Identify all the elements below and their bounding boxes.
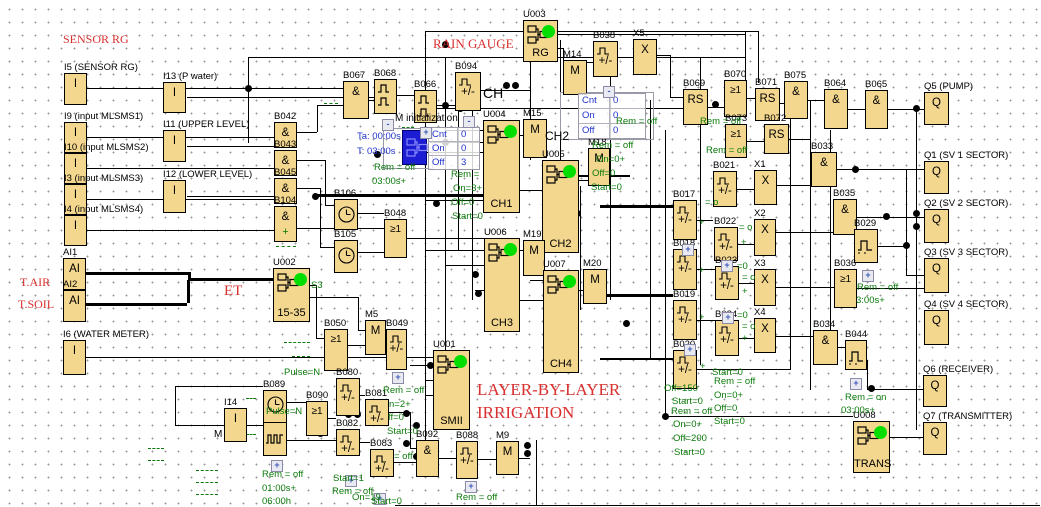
wire [530, 280, 543, 281]
block-B017[interactable]: B017+/- [673, 200, 697, 240]
wire [297, 188, 320, 189]
wire [328, 418, 336, 419]
expand-badge[interactable]: + [392, 372, 404, 384]
green-parameter-annotation: 01:00s+ [262, 483, 296, 494]
block-X3[interactable]: X3X [754, 269, 776, 306]
block-label: U004 [483, 109, 506, 120]
flag-symbol: M [366, 325, 385, 337]
junction-dot [403, 410, 410, 417]
flag-symbol: M [584, 274, 606, 286]
red-annotation: T.AIR [20, 275, 50, 290]
expand-badge[interactable]: + [684, 344, 696, 356]
updown-counter-symbol: +/- [371, 463, 393, 475]
junction-dot [442, 102, 449, 109]
block-U004[interactable]: U004CH1 [483, 120, 520, 213]
junction-dot [662, 413, 669, 420]
green-parameter-annotation: Pulse=N [266, 406, 302, 417]
junction-dot [868, 385, 875, 392]
block-U006[interactable]: U006CH3 [484, 238, 520, 332]
updown-counter-symbol: +/- [715, 241, 737, 253]
junction-dot [524, 442, 531, 449]
junction-dot [913, 223, 920, 230]
green-parameter-annotation: =0 [737, 310, 748, 321]
block-B034[interactable]: B034& [813, 330, 838, 365]
block-I11[interactable]: I11 (UPPER LEVEL)I [163, 130, 186, 162]
green-parameter-annotation: Off=200 [673, 433, 707, 444]
block-U008[interactable]: U008TRANS [853, 421, 890, 473]
collapse-badge[interactable]: - [463, 116, 475, 128]
block-label: B034 [813, 319, 835, 330]
updown-counter-symbol: +/- [674, 214, 696, 226]
block-label: B049 [386, 318, 408, 329]
block-B072[interactable]: B072RS [764, 124, 789, 154]
wire [394, 462, 416, 463]
wire [580, 186, 581, 310]
collapse-badge[interactable]: - [603, 86, 615, 98]
block-label: M9 [496, 430, 509, 441]
green-parameter-annotation: + [742, 286, 748, 297]
block-X4[interactable]: X4X [754, 318, 776, 353]
open-connector-dash [246, 434, 256, 435]
wire [867, 389, 923, 390]
green-parameter-annotation: On=3+ [453, 183, 482, 194]
updown-counter-symbol: +/- [366, 413, 388, 425]
analog-input-symbol: AI [64, 263, 85, 275]
block-B090[interactable]: B090≥1 [306, 401, 328, 436]
udf-name: RG [524, 47, 557, 59]
rs-latch-symbol: RS [684, 94, 707, 106]
block-label: M20 [583, 258, 601, 269]
block-label: AI1 [63, 247, 77, 258]
wire [358, 297, 359, 330]
wire [325, 205, 334, 206]
green-parameter-annotation: 3:00s+ [856, 295, 885, 306]
wire [558, 34, 745, 35]
block-M9[interactable]: M9M [496, 441, 519, 475]
wire [916, 108, 917, 430]
block-label: B083 [370, 438, 392, 449]
block-B080[interactable]: B080+/- [336, 378, 360, 416]
input-symbol: I [65, 78, 86, 90]
block-label: B067 [343, 70, 365, 81]
wire [758, 31, 759, 83]
green-parameter-annotation: Rem = off [616, 116, 657, 127]
block-B067[interactable]: B067& [343, 81, 369, 119]
udf-name: 15-35 [274, 307, 309, 319]
block-label: B036 [834, 258, 856, 269]
param-key: On [429, 142, 457, 155]
udf-name: CH1 [484, 198, 519, 210]
junction-dot [913, 210, 920, 217]
green-parameter-annotation: Off=0 [592, 168, 615, 179]
or-gate-symbol: ≥1 [385, 224, 406, 235]
block-label: M15 [523, 108, 541, 119]
block-label: I14 [224, 397, 237, 408]
green-parameter-annotation: On=0+ [714, 390, 743, 401]
green-parameter-annotation: = o [742, 321, 755, 332]
or-gate-symbol: ≥1 [726, 129, 746, 140]
updown-counter-symbol: +/- [674, 263, 696, 275]
block-X2[interactable]: X2X [754, 219, 776, 256]
block-B092[interactable]: B092& [416, 440, 439, 477]
block-B064[interactable]: B064& [824, 89, 848, 129]
expand-badge[interactable]: + [682, 244, 694, 256]
block-label: B043 [274, 139, 296, 150]
and-gate-symbol: & [812, 157, 836, 169]
wire [838, 347, 845, 348]
wire [187, 280, 190, 303]
green-run-indicator [874, 426, 887, 439]
block-I4[interactable]: I4 (input MLSMS4)I [64, 215, 87, 246]
green-parameter-annotation: + [699, 217, 705, 228]
block-B083[interactable]: B083+/- [370, 449, 394, 477]
green-parameter-annotation: + [700, 361, 706, 372]
green-parameter-annotation: = o [739, 222, 752, 233]
wire [86, 230, 274, 231]
green-parameter-annotation: Rem = off [456, 492, 497, 503]
or-gate-symbol: ≥1 [835, 274, 856, 285]
block-X5[interactable]: X5X [633, 39, 657, 75]
block-B070[interactable]: B070≥1 [724, 80, 747, 117]
flag-symbol: M [524, 124, 546, 136]
wire [445, 57, 446, 350]
collapse-badge[interactable]: - [382, 119, 394, 131]
block-label: Q4 (SV 4 SECTOR) [924, 299, 1008, 310]
wire [600, 358, 673, 360]
and-gate-symbol: & [275, 155, 296, 167]
green-parameter-annotation: Rem = off [714, 376, 755, 387]
green-parameter-annotation: S3 [311, 280, 323, 291]
junction-dot [503, 82, 510, 89]
green-parameter-annotation: = o [705, 197, 718, 208]
pulse-generator-icon [265, 431, 285, 451]
wire [739, 283, 754, 284]
wire [657, 55, 670, 56]
block-I14[interactable]: I14I [224, 408, 247, 442]
expand-badge[interactable]: + [420, 127, 432, 139]
block-label: Q2 (SV 2 SECTOR) [924, 198, 1008, 209]
block-label: B090 [306, 390, 328, 401]
flag-symbol: M [497, 446, 518, 458]
wiping-relay-icon [856, 235, 876, 260]
param-key: Cnt [429, 128, 457, 141]
block-label: B065 [865, 79, 887, 90]
block-Q2[interactable]: Q2 (SV 2 SECTOR)Q [924, 209, 949, 243]
block-Q4[interactable]: Q4 (SV 4 SECTOR)Q [924, 310, 949, 345]
wire [397, 95, 414, 96]
input-symbol: I [65, 127, 86, 139]
junction-dot [403, 440, 410, 447]
green-parameter-annotation: Start=0 [714, 416, 745, 427]
wire [86, 303, 187, 306]
wire [358, 330, 365, 331]
red-annotation: SENSOR RG [63, 32, 129, 47]
block-Q5[interactable]: Q5 (PUMP)Q [924, 92, 949, 125]
red-annotation: ET [224, 283, 242, 300]
selected-block-icon [405, 137, 429, 164]
block-B104[interactable]: B104&+ [274, 206, 297, 242]
open-connector-dash [196, 494, 218, 495]
wire [906, 275, 924, 276]
wire [747, 141, 764, 142]
block-B081[interactable]: B081+/- [365, 399, 389, 426]
wire [86, 272, 188, 275]
updown-counter-symbol: +/- [674, 314, 696, 326]
green-parameter-annotation: Start=1 [333, 473, 364, 484]
wire [310, 297, 358, 298]
block-divider [264, 422, 286, 423]
param-row: On0 [429, 141, 479, 155]
block-B019[interactable]: B019+/- [673, 300, 697, 340]
expand-badge[interactable]: + [722, 312, 734, 324]
block-label: B089 [263, 379, 285, 390]
block-label: Q1 (SV 1 SECTOR) [924, 150, 1008, 161]
green-parameter-annotation: Start=0 [387, 426, 418, 437]
timer-clock-icon [337, 246, 356, 270]
green-parameter-annotation: ff=0 [388, 412, 404, 423]
block-B089[interactable]: B089 [263, 390, 287, 456]
block-U005[interactable]: U005CH2 [542, 160, 579, 253]
updown-counter-symbol: +/- [457, 455, 477, 467]
block-label: B022 [714, 216, 736, 227]
black-annotation: CH [483, 85, 503, 101]
block-label: AI2 [63, 279, 77, 290]
wire [520, 190, 542, 191]
block-label: Q3 (SV 3 SECTOR) [924, 247, 1008, 258]
wire [618, 57, 633, 58]
or-gate-symbol: ≥1 [325, 334, 347, 345]
updown-counter-symbol: +/- [337, 443, 359, 455]
block-Q3[interactable]: Q3 (SV 3 SECTOR)Q [924, 258, 949, 293]
block-label: B075 [784, 70, 806, 81]
block-B106[interactable]: B106 [334, 199, 358, 230]
junction-dot [913, 105, 920, 112]
block-B065[interactable]: B065& [865, 90, 888, 129]
block-B082[interactable]: B082+/- [336, 429, 360, 456]
and-gate-symbol: & [275, 127, 296, 139]
x-connector-symbol: X [755, 274, 775, 286]
block-label: U002 [273, 257, 296, 268]
wire [360, 442, 370, 443]
block-B068[interactable]: B068 [374, 79, 397, 114]
green-parameter-annotation: Off=150 [664, 383, 698, 394]
wire [520, 300, 543, 301]
block-B088[interactable]: B088+/- [456, 441, 478, 479]
block-label: B069 [683, 78, 705, 89]
block-label: B042 [274, 111, 296, 122]
green-parameter-annotation: On=0+ [673, 419, 702, 430]
green-parameter-annotation: + [699, 265, 705, 276]
block-U001[interactable]: U001SMII [433, 350, 470, 430]
and-gate-symbol: & [344, 86, 368, 98]
green-parameter-annotation: Start=0 [452, 211, 483, 222]
green-parameter-annotation: Start=0 [591, 182, 622, 193]
and-gate-symbol: & [866, 95, 887, 107]
block-I6[interactable]: I6 (WATER METER)I [63, 340, 86, 375]
red-annotation: RAIN GAUGE [433, 36, 514, 52]
wire [425, 31, 758, 32]
block-M14[interactable]: M14M [563, 60, 587, 95]
green-parameter-annotation: Start=0 [371, 496, 402, 507]
block-B048[interactable]: B048≥1 [384, 219, 407, 258]
block-M5[interactable]: M5M [365, 320, 386, 355]
param-key: On [579, 109, 609, 123]
block-label: B035 [833, 188, 855, 199]
wire [425, 395, 433, 396]
block-label: B017 [673, 189, 695, 200]
block-label: I4 (input MLSMS4) [64, 204, 143, 215]
green-run-indicator [563, 165, 576, 178]
red-annotation: T.SOIL [18, 297, 54, 312]
block-U002[interactable]: U00215-35 [273, 268, 310, 322]
green-parameter-annotation: + [741, 237, 747, 248]
green-parameter-annotation: Rem = off [383, 385, 424, 396]
wire [747, 98, 755, 99]
block-label: B021 [713, 160, 735, 171]
block-U003[interactable]: U003RG [523, 20, 558, 62]
green-parameter-annotation: Rem = off [592, 140, 633, 151]
block-label: U001 [433, 339, 456, 350]
green-parameter-annotation: Start=0 [674, 447, 705, 458]
x-connector-symbol: X [755, 323, 775, 335]
wire [670, 97, 683, 98]
block-label: U005 [542, 149, 565, 160]
block-label: I6 (WATER METER) [63, 329, 149, 340]
updown-counter-symbol: +/- [714, 185, 736, 197]
udf-name: CH2 [543, 238, 578, 250]
red-annotation: IRRIGATION [477, 403, 574, 423]
block-Q6[interactable]: Q6 (RECEIVER)Q [923, 375, 947, 407]
black-annotation: M [214, 429, 222, 440]
wire [697, 369, 790, 370]
retentive-pulse-icon [377, 82, 395, 114]
wire [188, 278, 273, 281]
output-symbol: Q [925, 166, 948, 178]
green-parameter-annotation: 03:00s+ [372, 176, 406, 187]
block-label: Q6 (RECEIVER) [923, 364, 993, 375]
wire [906, 246, 907, 275]
block-B075[interactable]: B075& [784, 81, 808, 119]
black-annotation: M initialization [395, 113, 458, 124]
block-Q1[interactable]: Q1 (SV 1 SECTOR)Q [924, 161, 949, 194]
and-gate-symbol: & [275, 183, 296, 195]
wire [358, 252, 384, 253]
block-I12[interactable]: I12 (LOWER LEVEL)I [163, 180, 186, 213]
block-B050[interactable]: B050≥1 [324, 329, 348, 371]
and-gate-symbol: & [814, 335, 837, 347]
analog-input-symbol: AI [64, 295, 85, 307]
flag-symbol: M [564, 65, 586, 77]
expand-badge[interactable]: + [862, 270, 874, 282]
expand-badge[interactable]: + [850, 378, 862, 390]
block-Q7[interactable]: Q7 (TRANSMITTER)Q [923, 422, 947, 455]
wire [445, 265, 484, 266]
block-label: I11 (UPPER LEVEL) [163, 119, 249, 130]
block-B049[interactable]: B049+/- [386, 329, 407, 370]
block-label: B071 [755, 77, 777, 88]
input-symbol: I [164, 185, 185, 197]
block-B029[interactable]: B029 [854, 229, 878, 263]
green-parameter-annotation: = off [394, 451, 413, 462]
block-label: I12 (LOWER LEVEL) [163, 169, 252, 180]
param-row: Cnt0 [429, 128, 479, 141]
expand-badge[interactable]: + [721, 260, 733, 272]
green-parameter-annotation: + [742, 333, 748, 344]
param-row: Off3 [429, 155, 479, 169]
updown-counter-symbol: +/- [456, 86, 480, 98]
wire [439, 458, 456, 459]
param-value: 0 [457, 142, 479, 155]
green-parameter-annotation: = o [742, 272, 755, 283]
wire [579, 180, 588, 181]
green-run-indicator [294, 273, 307, 286]
updown-counter-symbol: +/- [716, 280, 738, 292]
and-gate-symbol: & [275, 211, 296, 223]
wire [478, 459, 496, 460]
block-label: Q5 (PUMP) [924, 81, 973, 92]
input-symbol: I [64, 345, 85, 357]
block-label: B019 [673, 289, 695, 300]
wire [848, 109, 865, 110]
block-U007[interactable]: U007CH4 [543, 270, 579, 373]
block-M19[interactable]: M19M [523, 240, 545, 276]
block-B094[interactable]: B094+/- [455, 72, 481, 111]
block-label: I10 (input MLSMS2) [64, 142, 148, 153]
wire [247, 425, 263, 426]
block-label: I3 (input MLSMS3) [64, 173, 143, 184]
open-connector-dash [292, 356, 310, 357]
green-run-indicator [504, 243, 517, 256]
block-B036[interactable]: B036≥1 [834, 269, 857, 308]
block-label: B092 [416, 429, 438, 440]
param-key: Off [579, 124, 609, 138]
wire [248, 57, 249, 143]
x-connector-symbol: X [755, 224, 775, 236]
block-AI2[interactable]: AI2AI [63, 290, 86, 322]
block-I13[interactable]: I13 (P water)I [163, 82, 186, 113]
black-annotation: CH2 [545, 129, 569, 143]
block-M20[interactable]: M20M [583, 269, 607, 304]
block-B033[interactable]: B033& [811, 152, 837, 187]
green-parameter-annotation: + [699, 312, 705, 323]
green-parameter-annotation: Off=0 [451, 197, 474, 208]
wire [86, 357, 433, 358]
block-B105[interactable]: B105 [334, 240, 358, 273]
junction-dot [623, 320, 630, 327]
diagram-canvas[interactable]: I5 (SENSOR RG)II9 (input MLSMS1)II10 (in… [0, 0, 1041, 507]
output-symbol: Q [925, 97, 948, 109]
rs-latch-symbol: RS [765, 129, 788, 141]
green-parameter-annotation: 06:00h [262, 496, 291, 507]
block-label: U006 [484, 227, 507, 238]
wire [175, 425, 224, 426]
block-B044[interactable]: B044 [845, 340, 867, 370]
block-B038[interactable]: B038+/- [593, 41, 618, 77]
and-gate-symbol: & [785, 86, 807, 98]
block-X1[interactable]: X1X [754, 170, 777, 205]
updown-counter-symbol: +/- [337, 392, 359, 404]
wire [175, 386, 176, 425]
wire [316, 338, 324, 339]
udf-name: CH3 [485, 317, 519, 329]
wire [536, 440, 537, 506]
open-connector-dash [148, 460, 164, 461]
block-label: X2 [754, 208, 766, 219]
block-I5[interactable]: I5 (SENSOR RG)I [64, 73, 87, 105]
wire [776, 336, 813, 337]
wire [317, 105, 318, 132]
block-B024[interactable]: B024+/- [715, 320, 739, 356]
